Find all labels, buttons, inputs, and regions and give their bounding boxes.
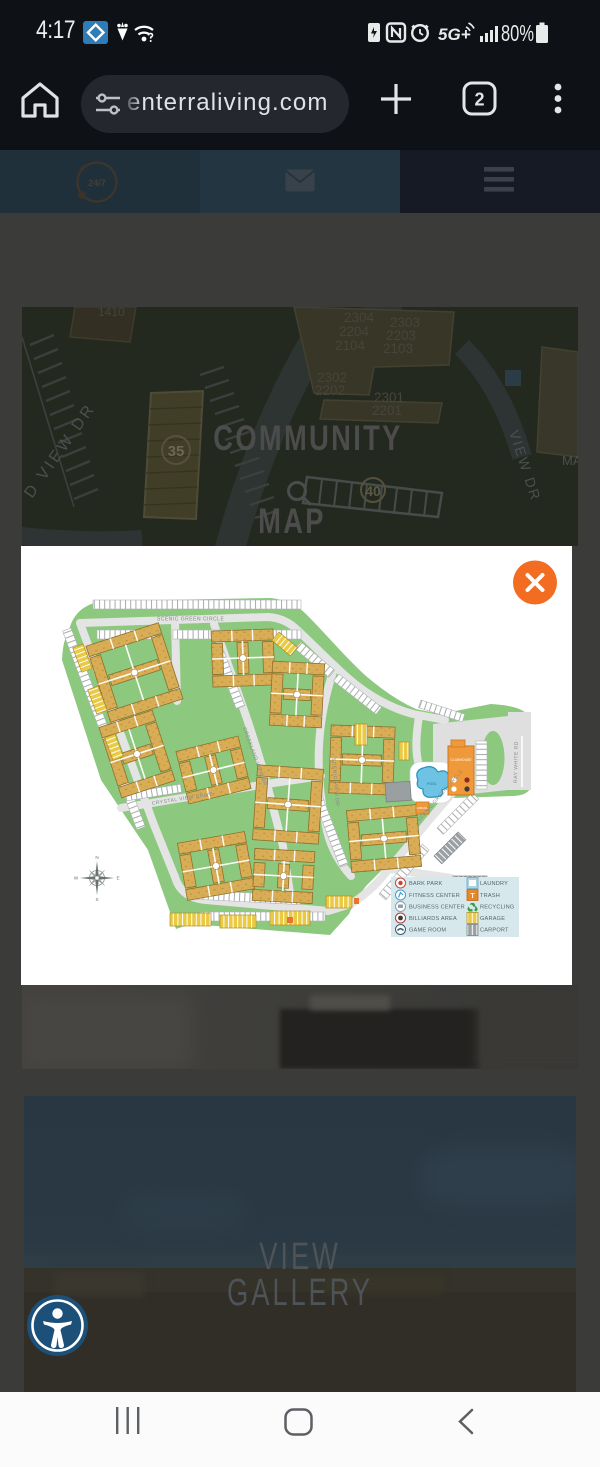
- svg-text:1410: 1410: [98, 307, 125, 319]
- svg-text:T: T: [470, 893, 475, 900]
- svg-text:GARAGE: GARAGE: [480, 916, 505, 922]
- svg-text:W: W: [74, 876, 79, 881]
- svg-text:24/7: 24/7: [88, 178, 106, 188]
- svg-text:POOL: POOL: [427, 782, 437, 786]
- svg-text:2201: 2201: [372, 403, 402, 418]
- svg-text:BILLIARDS AREA: BILLIARDS AREA: [409, 916, 457, 922]
- svg-text:CARPORT: CARPORT: [480, 928, 509, 934]
- svg-text:2204: 2204: [339, 324, 370, 339]
- svg-text:2104: 2104: [335, 338, 366, 353]
- svg-text:BARK PARK: BARK PARK: [409, 881, 442, 887]
- svg-text:GAME ROOM: GAME ROOM: [409, 928, 446, 934]
- svg-text:S: S: [95, 897, 98, 902]
- svg-text:2304: 2304: [344, 310, 375, 325]
- svg-text:2103: 2103: [383, 341, 413, 356]
- svg-text:2: 2: [474, 90, 484, 110]
- svg-text:N: N: [95, 855, 98, 860]
- svg-text:TRASH: TRASH: [480, 893, 500, 899]
- svg-text:BUSINESS CENTER: BUSINESS CENTER: [409, 905, 465, 911]
- svg-text:RECYCLING: RECYCLING: [480, 905, 514, 911]
- svg-text:LAUNDRY: LAUNDRY: [480, 881, 508, 887]
- svg-text:E: E: [116, 876, 119, 881]
- svg-text:CLUBHOUSE: CLUBHOUSE: [450, 758, 472, 762]
- svg-text:80%: 80%: [501, 20, 534, 46]
- svg-text:RAY WHITE RD: RAY WHITE RD: [513, 741, 520, 783]
- svg-text:FITNESS CENTER: FITNESS CENTER: [409, 893, 460, 899]
- svg-text:2202: 2202: [315, 383, 345, 398]
- svg-text:MA: MA: [562, 453, 578, 468]
- svg-text:5G+: 5G+: [438, 25, 471, 44]
- svg-text:SCENIC GREEN CIRCLE: SCENIC GREEN CIRCLE: [157, 617, 224, 623]
- svg-text:40: 40: [365, 483, 381, 499]
